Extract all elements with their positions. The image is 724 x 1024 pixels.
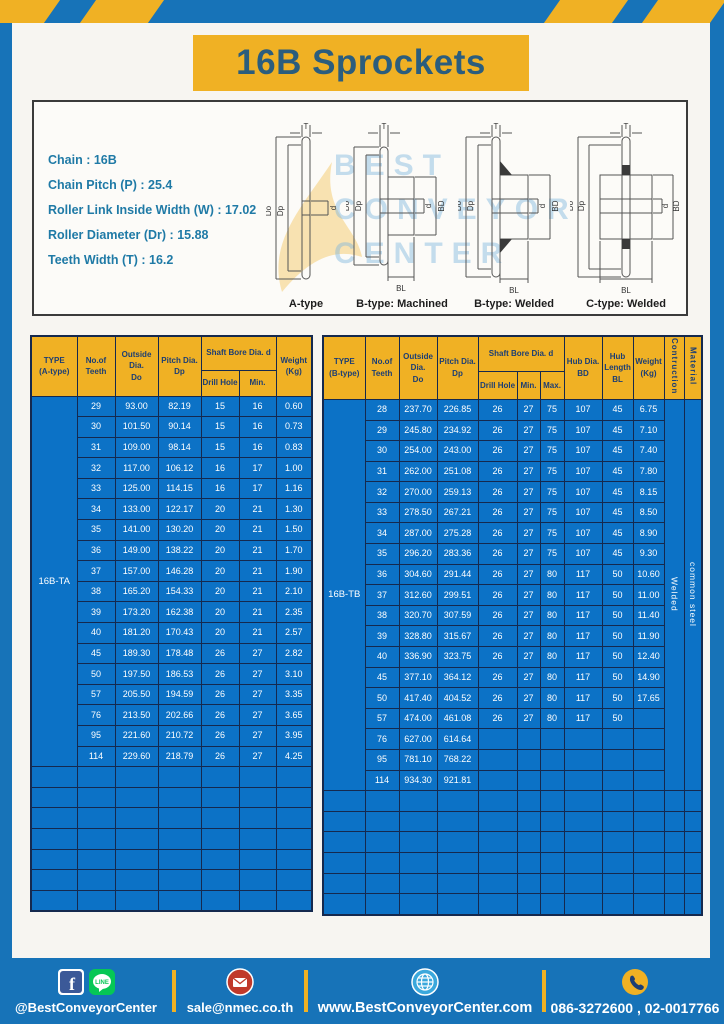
line-icon[interactable]: LINE [89, 969, 115, 995]
data-cell: 1.30 [276, 499, 312, 520]
footer-email[interactable]: sale@nmec.co.th [187, 1000, 294, 1015]
data-cell: 45 [602, 502, 633, 523]
material-cell: common steel [684, 399, 702, 790]
dim-bl: BL [396, 284, 406, 293]
footer-website[interactable]: www.BestConveyorCenter.com [318, 1000, 533, 1016]
col-header-hub-dia: Hub Dia. BD [564, 336, 602, 399]
empty-cell [540, 832, 564, 853]
empty-cell [517, 894, 540, 915]
stripe-decoration [80, 0, 164, 23]
data-cell: 80 [540, 647, 564, 668]
dim-bd: BD [437, 200, 446, 211]
data-cell: 2.10 [276, 581, 312, 602]
empty-cell [31, 767, 77, 788]
data-cell: 27 [517, 502, 540, 523]
data-cell: 11.90 [633, 626, 664, 647]
data-cell: 1.00 [276, 458, 312, 479]
data-cell: 1.16 [276, 478, 312, 499]
data-cell [602, 770, 633, 791]
empty-row [323, 873, 702, 894]
dim-t: T [382, 122, 387, 131]
empty-cell [201, 849, 239, 870]
material-cell-label: common steel [689, 562, 698, 627]
data-cell: 107 [564, 461, 602, 482]
data-cell: 4.25 [276, 746, 312, 767]
footer-phone-section[interactable]: 086-3272600 , 02-0017766 [546, 967, 724, 1016]
empty-cell [684, 791, 702, 812]
empty-cell [239, 890, 276, 911]
footer-social-section[interactable]: f LINE @BestConveyorCenter [0, 967, 172, 1015]
col-header-construction: Contruction [664, 336, 684, 399]
empty-cell [564, 791, 602, 812]
empty-cell [239, 870, 276, 891]
table-row: 16B-TA2993.0082.1915160.60 [31, 396, 312, 417]
data-cell: 133.00 [115, 499, 158, 520]
empty-cell [77, 828, 115, 849]
dim-do: Do [346, 200, 351, 211]
data-cell: 39 [77, 602, 115, 623]
empty-cell [437, 852, 478, 873]
data-cell: 50 [602, 585, 633, 606]
empty-cell [602, 873, 633, 894]
footer-email-section[interactable]: sale@nmec.co.th [176, 967, 304, 1015]
data-cell: 117 [564, 647, 602, 668]
figure-label: B-type: Machined [356, 298, 448, 310]
data-cell: 82.19 [158, 396, 201, 417]
data-cell: 178.48 [158, 643, 201, 664]
data-cell: 234.92 [437, 420, 478, 441]
data-cell: 296.20 [399, 544, 437, 565]
data-cell: 80 [540, 688, 564, 709]
data-cell: 95 [365, 750, 399, 771]
data-cell: 21 [239, 561, 276, 582]
data-cell: 75 [540, 441, 564, 462]
empty-cell [564, 852, 602, 873]
data-cell: 50 [365, 688, 399, 709]
empty-cell [201, 808, 239, 829]
data-cell: 107 [564, 523, 602, 544]
empty-cell [77, 849, 115, 870]
data-cell: 15 [201, 437, 239, 458]
email-icon[interactable] [226, 968, 254, 996]
data-cell: 80 [540, 626, 564, 647]
empty-cell [633, 852, 664, 873]
empty-cell [239, 767, 276, 788]
data-cell: 1.90 [276, 561, 312, 582]
empty-cell [517, 811, 540, 832]
title-banner: 16B Sprockets [193, 35, 529, 91]
data-cell: 315.67 [437, 626, 478, 647]
a-type-table: TYPE (A-type) No.of Teeth Outside Dia. D… [30, 335, 313, 912]
data-cell: 1.70 [276, 540, 312, 561]
data-cell: 243.00 [437, 441, 478, 462]
empty-cell [115, 870, 158, 891]
data-cell: 10.60 [633, 564, 664, 585]
data-cell: 27 [517, 605, 540, 626]
empty-row [31, 828, 312, 849]
empty-cell [77, 870, 115, 891]
table-row: 35296.20283.36262775107459.30 [323, 544, 702, 565]
footer-website-section[interactable]: www.BestConveyorCenter.com [308, 967, 542, 1016]
empty-cell [437, 811, 478, 832]
data-cell [602, 729, 633, 750]
empty-row [31, 870, 312, 891]
data-cell: 27 [517, 461, 540, 482]
data-cell: 287.00 [399, 523, 437, 544]
table-row: 38320.70307.592627801175011.40 [323, 605, 702, 626]
footer-social-handle[interactable]: @BestConveyorCenter [15, 1000, 157, 1015]
empty-cell [478, 873, 517, 894]
data-cell: 31 [77, 437, 115, 458]
empty-cell [540, 894, 564, 915]
table-row: 31262.00251.08262775107457.80 [323, 461, 702, 482]
data-cell: 312.60 [399, 585, 437, 606]
table-row: 36304.60291.442627801175010.60 [323, 564, 702, 585]
empty-cell [31, 849, 77, 870]
col-header-shaft-bore: Shaft Bore Dia. d [478, 336, 564, 372]
data-cell: 117 [564, 708, 602, 729]
type-cell: 16B-TA [31, 396, 77, 767]
table-row: 114934.30921.81 [323, 770, 702, 791]
data-cell: 2.57 [276, 623, 312, 644]
data-cell [633, 708, 664, 729]
data-cell: 278.50 [399, 502, 437, 523]
table-row: 37312.60299.512627801175011.00 [323, 585, 702, 606]
empty-cell [115, 849, 158, 870]
table-row: 76627.00614.64 [323, 729, 702, 750]
data-cell: 76 [365, 729, 399, 750]
figure-b-type-welded: T Do D [458, 106, 570, 310]
data-cell: 254.00 [399, 441, 437, 462]
data-cell: 0.73 [276, 417, 312, 438]
empty-cell [437, 894, 478, 915]
data-cell [564, 729, 602, 750]
data-cell: 336.90 [399, 647, 437, 668]
footer-phone-numbers[interactable]: 086-3272600 , 02-0017766 [551, 1000, 720, 1016]
data-cell: 26 [478, 564, 517, 585]
construction-cell: Welded [664, 399, 684, 790]
col-header-material-label: Material [687, 347, 699, 385]
empty-cell [276, 767, 312, 788]
footer-contact-bar: f LINE @BestConveyorCenter sale@nmec.co.… [0, 958, 724, 1024]
data-cell: 101.50 [115, 417, 158, 438]
data-cell: 417.40 [399, 688, 437, 709]
empty-cell [633, 873, 664, 894]
spec-line-chain: Chain : 16B [48, 148, 256, 173]
empty-cell [664, 873, 684, 894]
empty-cell [201, 828, 239, 849]
empty-cell [602, 894, 633, 915]
empty-cell [517, 832, 540, 853]
globe-icon[interactable] [411, 968, 439, 996]
data-cell: 27 [517, 708, 540, 729]
data-cell: 20 [201, 499, 239, 520]
data-cell: 20 [201, 540, 239, 561]
empty-cell [239, 787, 276, 808]
empty-cell [437, 832, 478, 853]
data-cell: 210.72 [158, 726, 201, 747]
dim-do: Do [266, 205, 273, 216]
empty-cell [684, 832, 702, 853]
dim-d: d [538, 204, 547, 208]
col-header-shaft-bore: Shaft Bore Dia. d [201, 336, 276, 370]
data-cell: 27 [517, 647, 540, 668]
empty-cell [664, 894, 684, 915]
empty-row [31, 787, 312, 808]
data-cell: 27 [239, 726, 276, 747]
data-cell: 125.00 [115, 478, 158, 499]
empty-cell [115, 767, 158, 788]
data-cell: 29 [365, 420, 399, 441]
data-cell: 80 [540, 585, 564, 606]
data-cell: 80 [540, 667, 564, 688]
data-cell: 75 [540, 399, 564, 420]
data-cell: 76 [77, 705, 115, 726]
data-cell: 20 [201, 623, 239, 644]
data-cell: 26 [478, 420, 517, 441]
empty-cell [399, 791, 437, 812]
empty-cell [365, 852, 399, 873]
col-header-outside-dia: Outside Dia. Do [399, 336, 437, 399]
data-cell: 98.14 [158, 437, 201, 458]
data-cell: 50 [602, 605, 633, 626]
data-cell: 138.22 [158, 540, 201, 561]
data-cell: 109.00 [115, 437, 158, 458]
data-cell: 934.30 [399, 770, 437, 791]
col-header-construction-label: Contruction [668, 338, 680, 394]
data-cell: 50 [77, 664, 115, 685]
data-cell: 114.15 [158, 478, 201, 499]
empty-cell [540, 791, 564, 812]
empty-row [323, 852, 702, 873]
data-cell: 614.64 [437, 729, 478, 750]
facebook-icon[interactable]: f [58, 969, 84, 995]
data-cell [478, 729, 517, 750]
data-cell: 213.50 [115, 705, 158, 726]
empty-cell [664, 832, 684, 853]
top-decorative-bar [0, 0, 724, 23]
col-header-min: Min. [239, 370, 276, 396]
data-cell: 106.12 [158, 458, 201, 479]
data-cell: 75 [540, 482, 564, 503]
data-cell: 27 [517, 482, 540, 503]
dim-do: Do [458, 200, 463, 211]
data-cell: 328.80 [399, 626, 437, 647]
data-cell: 205.50 [115, 684, 158, 705]
col-header-pitch-dia: Pitch Dia. Dp [158, 336, 201, 396]
empty-cell [602, 852, 633, 873]
data-cell: 11.00 [633, 585, 664, 606]
data-cell: 221.60 [115, 726, 158, 747]
figure-c-type-welded: T Do D [570, 106, 682, 310]
data-cell: 251.08 [437, 461, 478, 482]
empty-cell [684, 894, 702, 915]
data-cell: 162.38 [158, 602, 201, 623]
data-cell: 26 [478, 523, 517, 544]
data-cell: 34 [365, 523, 399, 544]
data-cell: 27 [239, 664, 276, 685]
col-header-material: Material [684, 336, 702, 399]
page-title: 16B Sprockets [236, 43, 486, 83]
empty-cell [77, 767, 115, 788]
data-cell: 117 [564, 564, 602, 585]
dim-d: d [424, 204, 433, 208]
data-cell: 26 [478, 688, 517, 709]
empty-cell [31, 870, 77, 891]
data-cell: 40 [365, 647, 399, 668]
dim-dp: Dp [577, 200, 586, 211]
empty-cell [323, 791, 365, 812]
empty-cell [633, 791, 664, 812]
data-cell: 80 [540, 708, 564, 729]
empty-cell [664, 791, 684, 812]
data-cell: 26 [201, 643, 239, 664]
dim-d: d [661, 204, 670, 208]
data-cell: 27 [239, 746, 276, 767]
data-cell: 259.13 [437, 482, 478, 503]
data-cell: 36 [77, 540, 115, 561]
data-cell: 320.70 [399, 605, 437, 626]
data-cell: 45 [602, 523, 633, 544]
data-cell: 27 [239, 705, 276, 726]
spec-line-teeth-width: Teeth Width (T) : 16.2 [48, 248, 256, 273]
data-cell: 307.59 [437, 605, 478, 626]
data-cell: 146.28 [158, 561, 201, 582]
empty-cell [540, 873, 564, 894]
empty-cell [478, 791, 517, 812]
data-cell: 27 [517, 585, 540, 606]
empty-cell [115, 890, 158, 911]
empty-cell [276, 787, 312, 808]
data-cell: 262.00 [399, 461, 437, 482]
data-cell: 404.52 [437, 688, 478, 709]
empty-cell [201, 870, 239, 891]
data-cell: 34 [77, 499, 115, 520]
data-cell: 189.30 [115, 643, 158, 664]
data-cell: 17 [239, 478, 276, 499]
empty-cell [158, 767, 201, 788]
empty-cell [399, 852, 437, 873]
data-cell: 26 [201, 705, 239, 726]
data-cell [602, 750, 633, 771]
a-type-drawing: T Do Dp d [266, 121, 346, 297]
data-cell: 267.21 [437, 502, 478, 523]
data-cell: 50 [602, 708, 633, 729]
phone-icon[interactable] [621, 968, 649, 996]
empty-cell [365, 873, 399, 894]
data-cell: 16 [201, 478, 239, 499]
col-header-hub-length: Hub Length BL [602, 336, 633, 399]
data-cell: 0.60 [276, 396, 312, 417]
data-cell: 117.00 [115, 458, 158, 479]
data-cell: 26 [478, 626, 517, 647]
data-cell: 20 [201, 520, 239, 541]
page-panel: 16B Sprockets BEST CONVEYOR CENTER Chain… [12, 23, 710, 958]
data-cell: 245.80 [399, 420, 437, 441]
figure-label: B-type: Welded [474, 298, 554, 310]
data-cell: 921.81 [437, 770, 478, 791]
empty-cell [31, 890, 77, 911]
data-cell: 27 [517, 420, 540, 441]
dim-d: d [329, 206, 338, 210]
col-header-pitch-dia: Pitch Dia. Dp [437, 336, 478, 399]
col-header-weight: Weight (Kg) [276, 336, 312, 396]
data-cell: 275.28 [437, 523, 478, 544]
data-cell [633, 750, 664, 771]
empty-cell [564, 811, 602, 832]
empty-cell [31, 828, 77, 849]
col-header-teeth: No.of Teeth [365, 336, 399, 399]
data-cell: 26 [478, 399, 517, 420]
data-cell: 130.20 [158, 520, 201, 541]
data-cell: 173.20 [115, 602, 158, 623]
data-cell [633, 729, 664, 750]
data-cell: 21 [239, 602, 276, 623]
spec-line-pitch: Chain Pitch (P) : 25.4 [48, 173, 256, 198]
empty-cell [517, 852, 540, 873]
data-cell: 27 [517, 544, 540, 565]
empty-cell [437, 873, 478, 894]
b-type-machined-drawing: T Do Dp d [346, 121, 458, 297]
empty-cell [239, 849, 276, 870]
empty-cell [31, 808, 77, 829]
data-cell: 3.95 [276, 726, 312, 747]
dim-dp: Dp [276, 205, 285, 216]
data-cell: 12.40 [633, 647, 664, 668]
figure-label: A-type [289, 298, 323, 310]
spec-list: Chain : 16B Chain Pitch (P) : 25.4 Rolle… [48, 148, 256, 273]
data-cell: 21 [239, 540, 276, 561]
data-cell: 21 [239, 520, 276, 541]
data-cell: 291.44 [437, 564, 478, 585]
stripe-decoration [642, 0, 724, 23]
data-cell: 21 [239, 581, 276, 602]
data-cell: 323.75 [437, 647, 478, 668]
data-cell: 27 [517, 441, 540, 462]
data-cell: 50 [602, 564, 633, 585]
empty-cell [323, 873, 365, 894]
spec-line-roller-dia: Roller Diameter (Dr) : 15.88 [48, 223, 256, 248]
data-cell: 35 [77, 520, 115, 541]
empty-cell [564, 873, 602, 894]
data-cell: 38 [365, 605, 399, 626]
empty-cell [323, 811, 365, 832]
data-cell: 218.79 [158, 746, 201, 767]
dim-bl: BL [621, 286, 631, 295]
empty-row [31, 767, 312, 788]
data-cell: 781.10 [399, 750, 437, 771]
empty-cell [684, 852, 702, 873]
empty-cell [323, 894, 365, 915]
col-header-drill-hole: Drill Hole [478, 372, 517, 399]
data-cell: 21 [239, 623, 276, 644]
data-cell: 15 [201, 396, 239, 417]
data-cell: 7.80 [633, 461, 664, 482]
data-cell: 27 [517, 564, 540, 585]
empty-cell [239, 828, 276, 849]
data-cell [633, 770, 664, 791]
empty-cell [540, 852, 564, 873]
empty-cell [115, 828, 158, 849]
table-row: 16B-TB28237.70226.85262775107456.75Welde… [323, 399, 702, 420]
table-row: 45377.10364.122627801175014.90 [323, 667, 702, 688]
svg-text:LINE: LINE [95, 980, 109, 986]
data-cell: 107 [564, 441, 602, 462]
table-row: 57474.00461.0826278011750 [323, 708, 702, 729]
empty-cell [478, 811, 517, 832]
empty-cell [276, 870, 312, 891]
data-cell: 31 [365, 461, 399, 482]
